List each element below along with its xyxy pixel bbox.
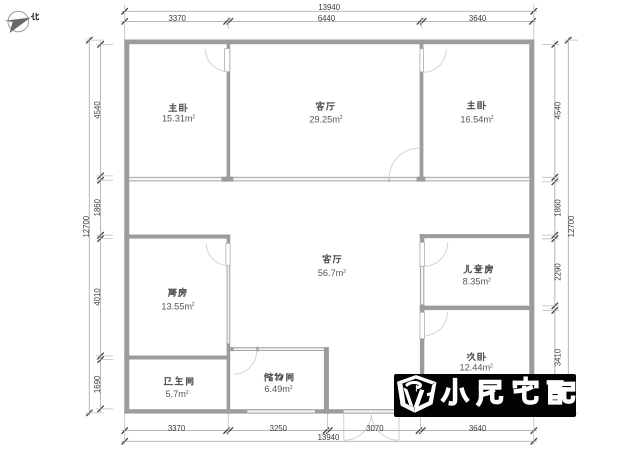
svg-text:3070: 3070 bbox=[366, 424, 384, 433]
svg-text:56.7m2: 56.7m2 bbox=[318, 268, 346, 278]
svg-text:8.35m2: 8.35m2 bbox=[463, 277, 491, 287]
svg-text:5.7m2: 5.7m2 bbox=[165, 389, 188, 399]
svg-text:3370: 3370 bbox=[169, 14, 187, 23]
svg-text:4540: 4540 bbox=[93, 101, 102, 119]
svg-text:1690: 1690 bbox=[93, 375, 102, 393]
svg-text:1860: 1860 bbox=[93, 198, 102, 216]
svg-text:6.49m2: 6.49m2 bbox=[264, 384, 292, 394]
svg-text:13940: 13940 bbox=[318, 433, 340, 442]
svg-text:3370: 3370 bbox=[168, 424, 186, 433]
svg-text:29.25m2: 29.25m2 bbox=[309, 114, 342, 124]
svg-text:3410: 3410 bbox=[554, 348, 563, 366]
svg-text:2290: 2290 bbox=[554, 263, 563, 281]
svg-text:13.55m2: 13.55m2 bbox=[161, 301, 194, 311]
svg-text:12.44m2: 12.44m2 bbox=[460, 363, 493, 373]
svg-text:3640: 3640 bbox=[469, 14, 487, 23]
svg-text:16.54m2: 16.54m2 bbox=[460, 114, 493, 124]
svg-text:13940: 13940 bbox=[318, 3, 340, 12]
svg-text:3250: 3250 bbox=[270, 424, 288, 433]
svg-text:6440: 6440 bbox=[318, 14, 336, 23]
svg-text:1860: 1860 bbox=[554, 199, 563, 217]
svg-text:15.31m2: 15.31m2 bbox=[162, 114, 195, 124]
svg-text:4010: 4010 bbox=[93, 288, 102, 306]
svg-text:12700: 12700 bbox=[567, 215, 576, 237]
svg-text:12700: 12700 bbox=[82, 215, 91, 237]
svg-text:3640: 3640 bbox=[469, 424, 487, 433]
svg-text:4540: 4540 bbox=[554, 101, 563, 119]
